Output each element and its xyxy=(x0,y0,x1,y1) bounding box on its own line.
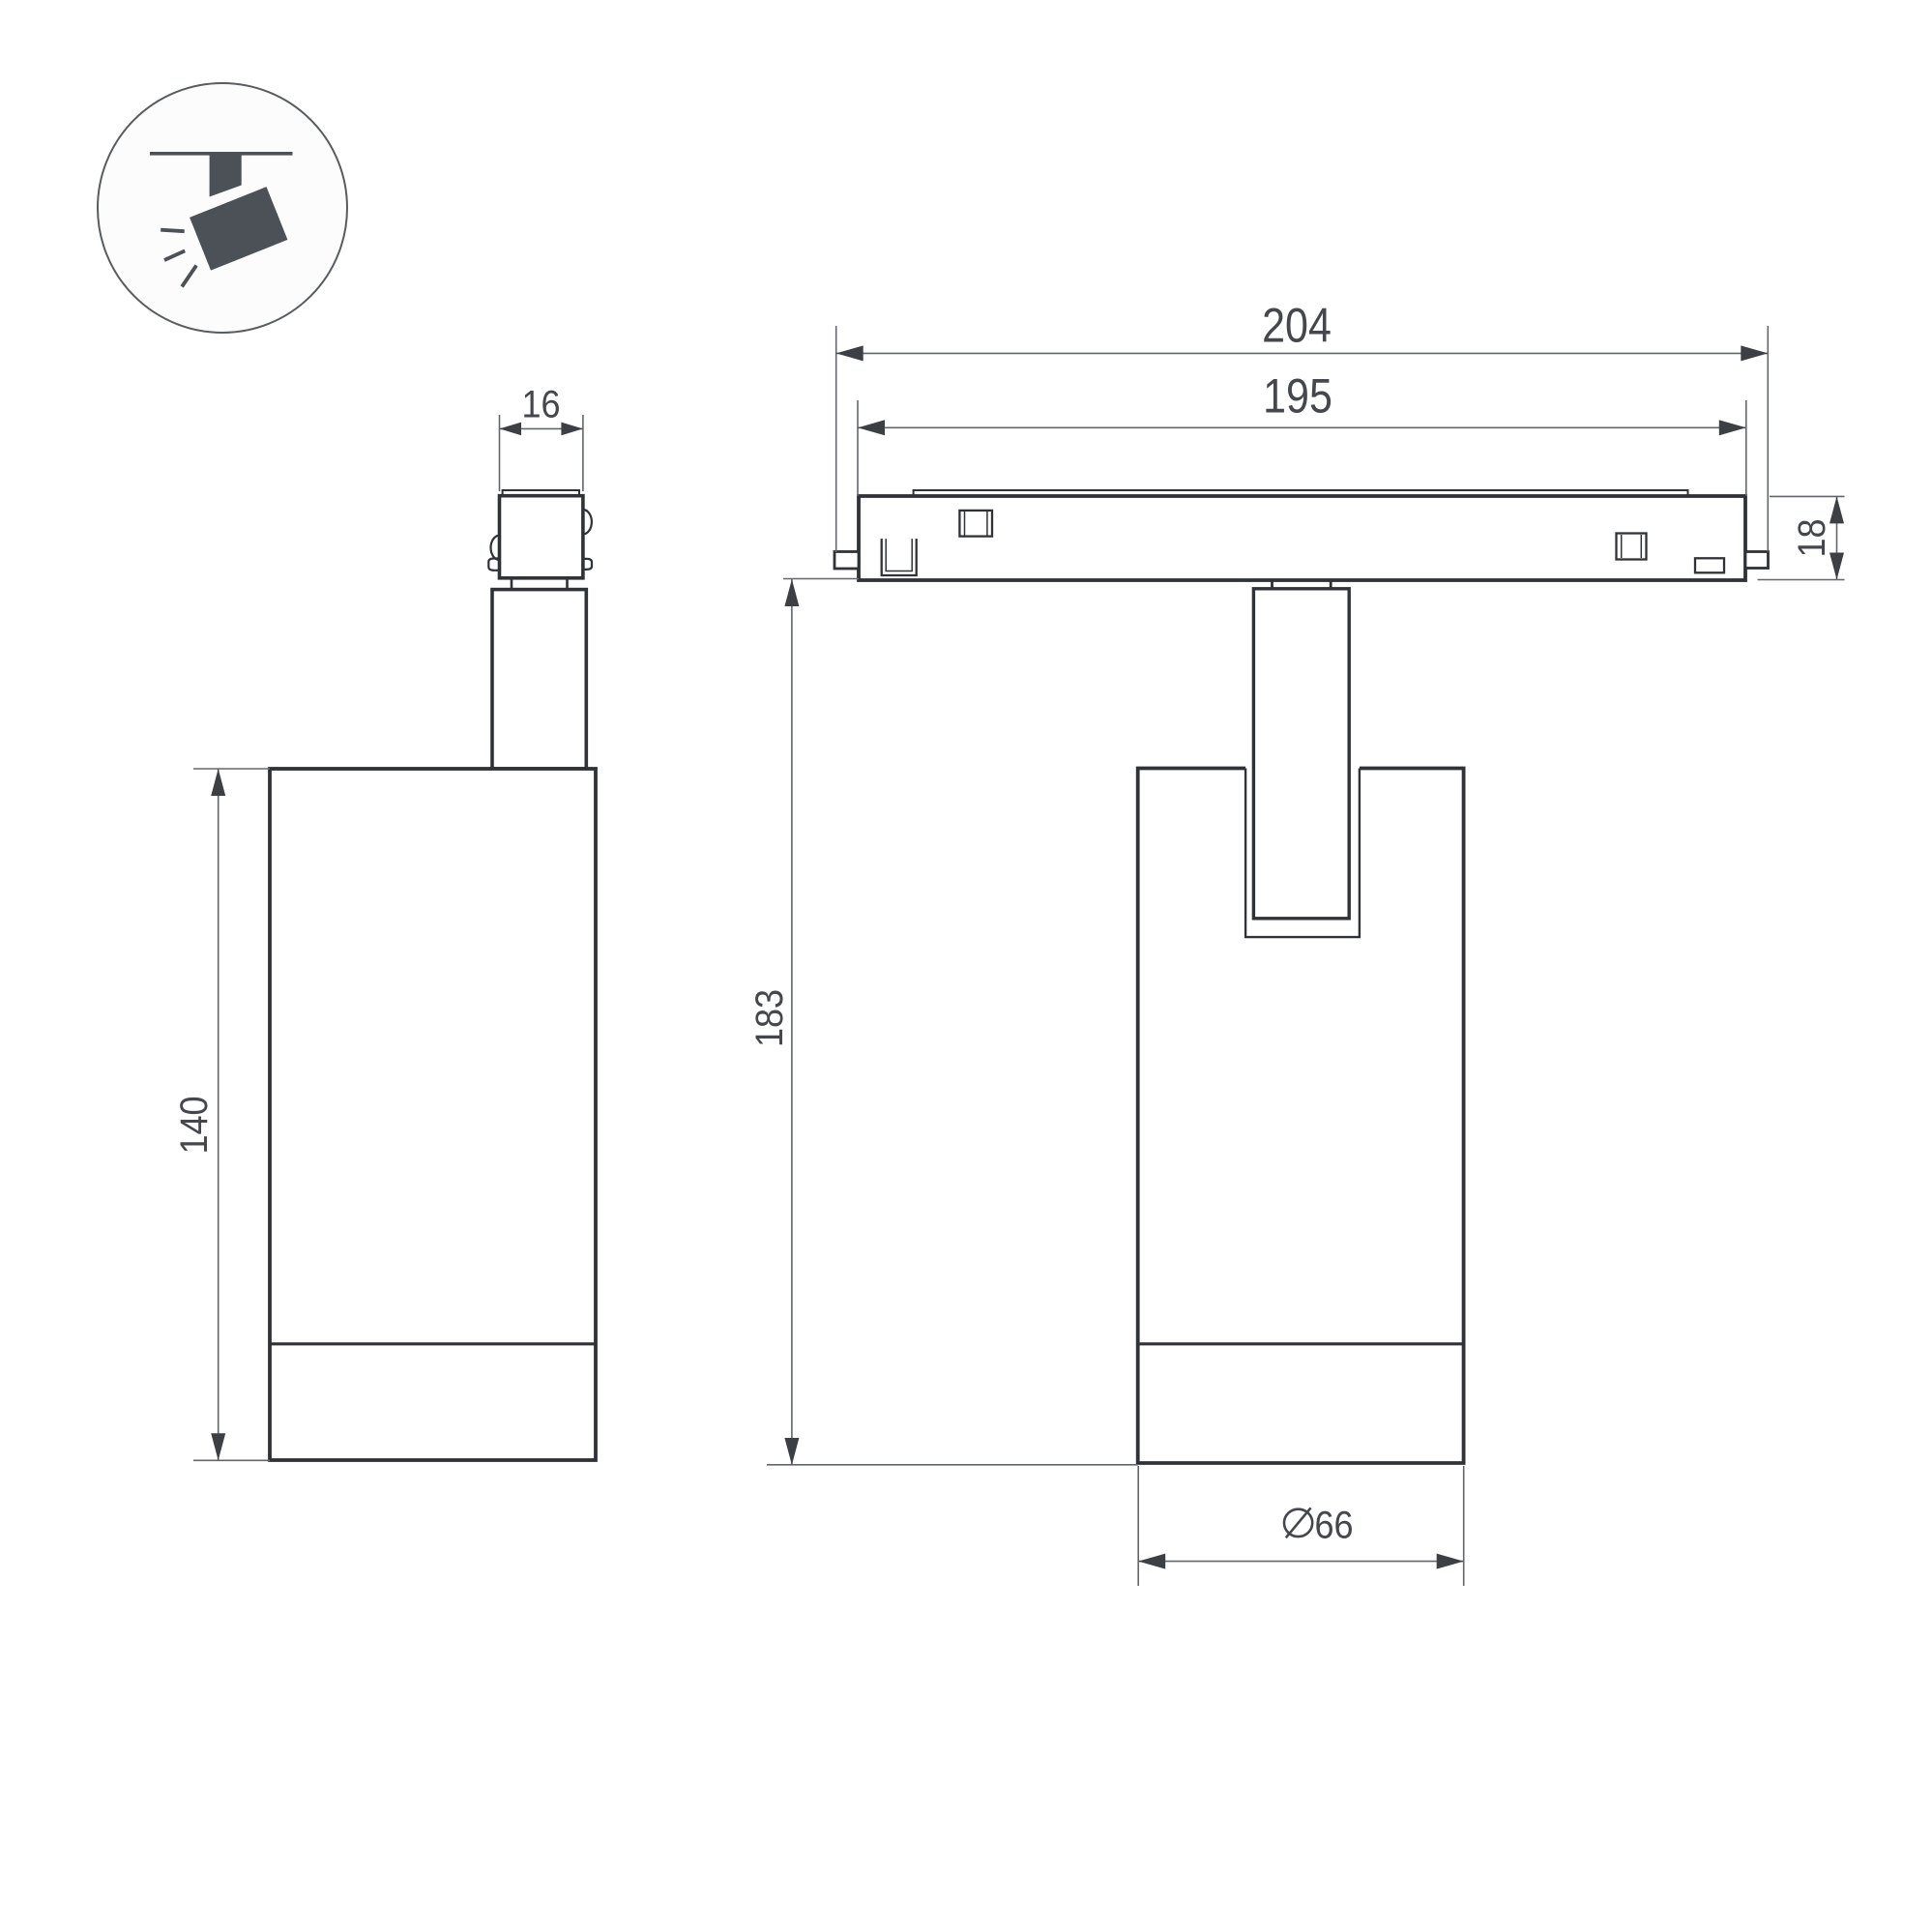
svg-text:204: 204 xyxy=(1262,298,1332,352)
svg-text:183: 183 xyxy=(748,989,791,1047)
svg-text:66: 66 xyxy=(1314,1505,1353,1547)
svg-text:18: 18 xyxy=(1791,518,1833,557)
svg-text:195: 195 xyxy=(1263,368,1332,423)
svg-text:16: 16 xyxy=(521,384,560,426)
svg-text:140: 140 xyxy=(173,1096,216,1154)
